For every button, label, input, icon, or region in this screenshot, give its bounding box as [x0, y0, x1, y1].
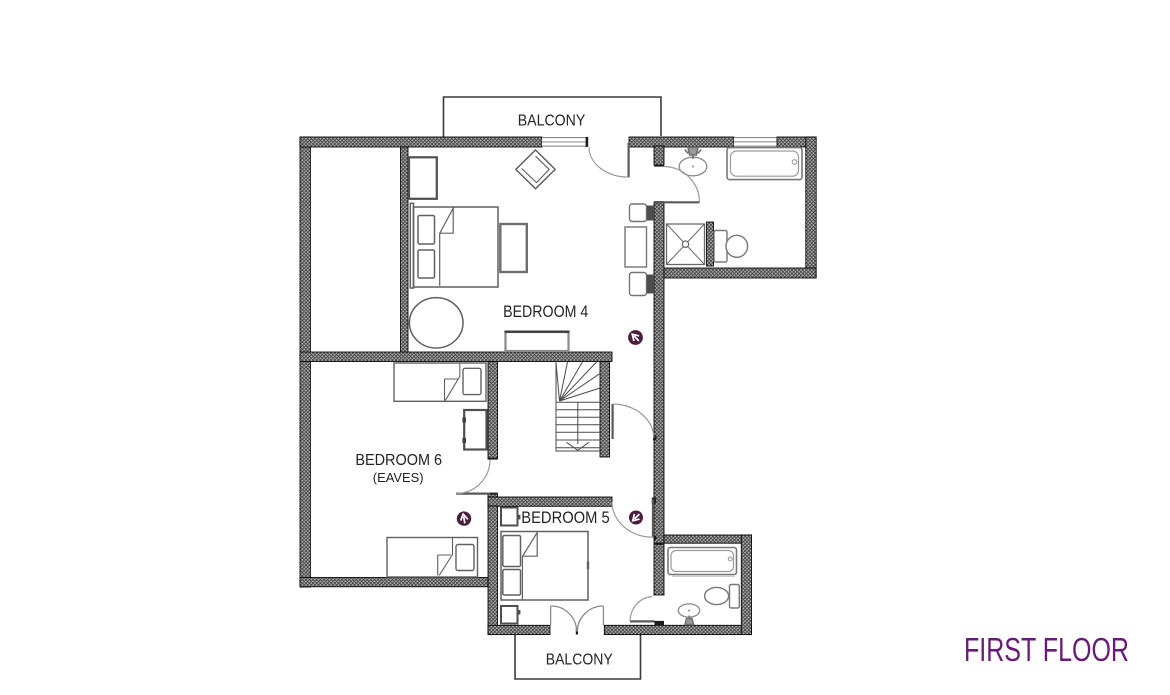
svg-text:BALCONY: BALCONY	[546, 652, 613, 669]
svg-text:BALCONY: BALCONY	[518, 113, 586, 130]
svg-text:(EAVES): (EAVES)	[373, 470, 424, 485]
svg-text:BEDROOM 6: BEDROOM 6	[355, 452, 442, 469]
svg-text:BEDROOM 4: BEDROOM 4	[503, 302, 588, 321]
svg-text:BEDROOM 5: BEDROOM 5	[521, 508, 610, 527]
svg-text:FIRST FLOOR: FIRST FLOOR	[964, 631, 1129, 668]
